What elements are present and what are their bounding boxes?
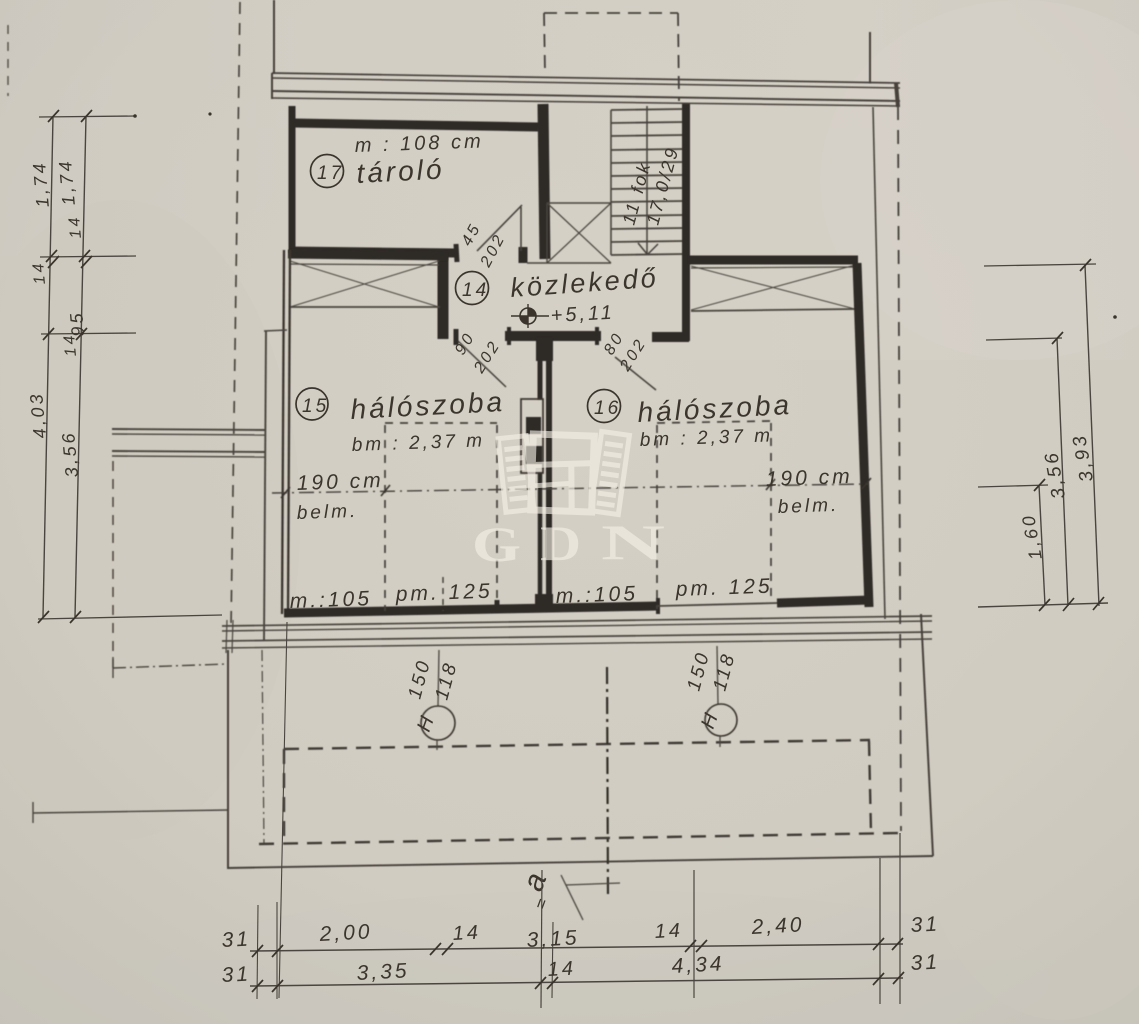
svg-text:14: 14	[654, 920, 683, 943]
svg-text:14: 14	[462, 280, 489, 301]
svg-text:3,56: 3,56	[58, 430, 82, 479]
svg-text:D: D	[540, 515, 581, 571]
svg-text:2,00: 2,00	[318, 920, 373, 946]
svg-text:31: 31	[910, 912, 941, 937]
svg-text:16: 16	[594, 398, 621, 419]
svg-text:3,35: 3,35	[356, 959, 410, 985]
svg-text:m : 108 cm: m : 108 cm	[354, 131, 484, 157]
svg-text:17: 17	[317, 163, 344, 184]
svg-text:belm.: belm.	[296, 501, 358, 524]
svg-text:31: 31	[910, 950, 941, 975]
svg-text:14: 14	[30, 260, 49, 285]
svg-text:+5,11: +5,11	[550, 302, 615, 327]
svg-text:14: 14	[547, 958, 576, 981]
svg-text:pm. 125: pm. 125	[674, 575, 773, 601]
svg-text:4,03: 4,03	[26, 391, 50, 440]
svg-text:2,40: 2,40	[750, 913, 805, 939]
svg-text:190 cm: 190 cm	[296, 469, 384, 495]
svg-text:belm.: belm.	[777, 495, 839, 518]
svg-text:pm. 125: pm. 125	[394, 580, 493, 606]
svg-text:1,74: 1,74	[55, 158, 79, 207]
svg-text:190 cm: 190 cm	[765, 465, 853, 491]
svg-text:G: G	[472, 516, 521, 572]
svg-text:m.:105: m.:105	[555, 582, 638, 608]
svg-text:4,34: 4,34	[671, 952, 725, 978]
svg-text:31: 31	[221, 927, 252, 952]
svg-text:14: 14	[66, 214, 85, 239]
svg-text:tároló: tároló	[356, 153, 446, 189]
svg-text:m.:105: m.:105	[289, 587, 372, 613]
svg-text:3,15: 3,15	[526, 926, 580, 952]
svg-text:14: 14	[61, 332, 80, 357]
svg-text:31: 31	[221, 962, 252, 987]
svg-text:14: 14	[452, 922, 481, 945]
svg-text:N: N	[601, 514, 665, 570]
svg-text:15: 15	[302, 396, 329, 417]
svg-text:1,74: 1,74	[29, 160, 53, 209]
